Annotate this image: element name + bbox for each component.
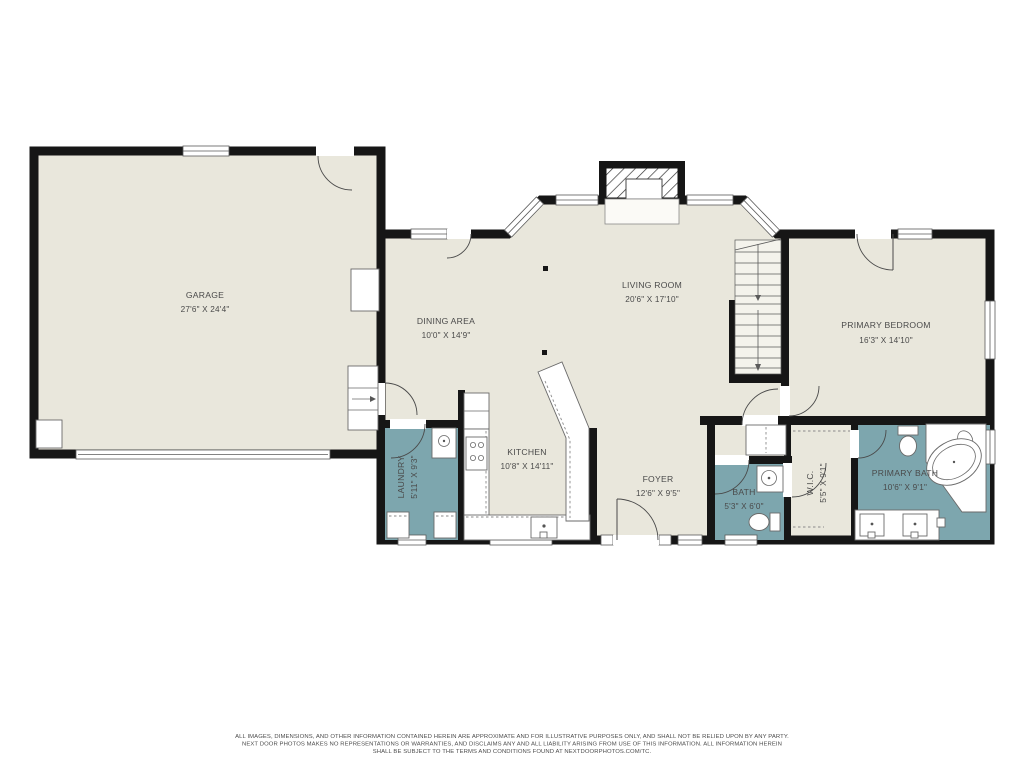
window bbox=[556, 195, 598, 205]
front-door-sidelight bbox=[659, 535, 671, 545]
wall bbox=[729, 374, 787, 383]
stairs bbox=[735, 239, 781, 374]
floor-plan-svg: GARAGE 27'6" X 24'4" DINING AREA 10'0" X… bbox=[0, 0, 1024, 768]
room-dims-garage: 27'6" X 24'4" bbox=[181, 305, 230, 314]
closet bbox=[746, 425, 786, 455]
door-opening bbox=[783, 463, 792, 497]
window bbox=[898, 229, 932, 239]
disclaimer-line-3: SHALL BE SUBJECT TO THE TERMS AND CONDIT… bbox=[373, 749, 652, 755]
room-label-living-room: LIVING ROOM bbox=[622, 280, 682, 290]
toilet-icon bbox=[749, 513, 780, 531]
refrigerator-icon bbox=[464, 393, 489, 429]
stove-icon bbox=[466, 437, 487, 470]
room-label-primary-bath: PRIMARY BATH bbox=[872, 468, 939, 478]
window bbox=[985, 301, 995, 359]
room-label-bath: BATH bbox=[732, 487, 755, 497]
room-label-laundry: LAUNDRY bbox=[396, 456, 406, 499]
support-post bbox=[542, 350, 547, 355]
garage-door bbox=[76, 450, 330, 459]
disclaimer-line-2: NEXT DOOR PHOTOS MAKES NO REPRESENTATION… bbox=[242, 742, 782, 748]
support-post bbox=[543, 266, 548, 271]
disclaimer-line-1: ALL IMAGES, DIMENSIONS, AND OTHER INFORM… bbox=[235, 734, 789, 740]
room-dims-living-room: 20'6" X 17'10" bbox=[625, 295, 679, 304]
room-label-garage: GARAGE bbox=[186, 290, 224, 300]
vanity-double-sink bbox=[855, 510, 945, 540]
door-opening bbox=[390, 419, 426, 429]
room-label-wic: W.I.C. bbox=[805, 471, 815, 496]
window bbox=[687, 195, 733, 205]
door-opening bbox=[715, 455, 749, 465]
room-label-foyer: FOYER bbox=[643, 474, 674, 484]
room-dims-bath: 5'3" X 6'0" bbox=[724, 502, 763, 511]
door-opening bbox=[316, 146, 354, 156]
sink-icon bbox=[757, 466, 783, 492]
hearth bbox=[605, 199, 679, 224]
front-door-opening bbox=[613, 535, 659, 545]
window bbox=[183, 146, 229, 156]
room-label-primary-bedroom: PRIMARY BEDROOM bbox=[841, 320, 930, 330]
door-opening bbox=[855, 229, 891, 239]
window bbox=[411, 229, 447, 239]
floor-plan-canvas: GARAGE 27'6" X 24'4" DINING AREA 10'0" X… bbox=[0, 0, 1024, 768]
window bbox=[678, 535, 702, 545]
disclaimer: ALL IMAGES, DIMENSIONS, AND OTHER INFORM… bbox=[235, 734, 789, 755]
room-dims-primary-bath: 10'6" X 9'1" bbox=[883, 483, 927, 492]
door-opening bbox=[742, 415, 778, 426]
room-dims-foyer: 12'6" X 9'5" bbox=[636, 489, 680, 498]
wall bbox=[707, 424, 715, 544]
room-label-kitchen: KITCHEN bbox=[507, 447, 546, 457]
door-opening bbox=[447, 229, 471, 239]
sink-icon bbox=[531, 517, 557, 538]
room-dims-dining-area: 10'0" X 14'9" bbox=[422, 331, 471, 340]
garage-utility-box bbox=[351, 269, 379, 311]
window bbox=[725, 535, 757, 545]
laundry-tub-icon bbox=[432, 428, 456, 458]
garage-steps bbox=[348, 366, 378, 430]
room-dims-kitchen: 10'8" X 14'11" bbox=[500, 462, 553, 471]
toilet-icon bbox=[898, 426, 918, 456]
window bbox=[985, 430, 995, 464]
garage-utility-box bbox=[36, 420, 62, 448]
front-door-sidelight bbox=[601, 535, 613, 545]
room-label-dining-area: DINING AREA bbox=[417, 316, 475, 326]
fireplace bbox=[599, 161, 685, 224]
room-dims-wic: 5'5" X 9'1" bbox=[819, 463, 828, 502]
room-dims-laundry: 5'11" X 9'3" bbox=[410, 455, 419, 499]
room-garage-floor bbox=[34, 151, 381, 454]
door-opening bbox=[780, 386, 790, 416]
door-opening bbox=[850, 430, 859, 458]
room-dims-primary-bedroom: 16'3" X 14'10" bbox=[859, 336, 913, 345]
